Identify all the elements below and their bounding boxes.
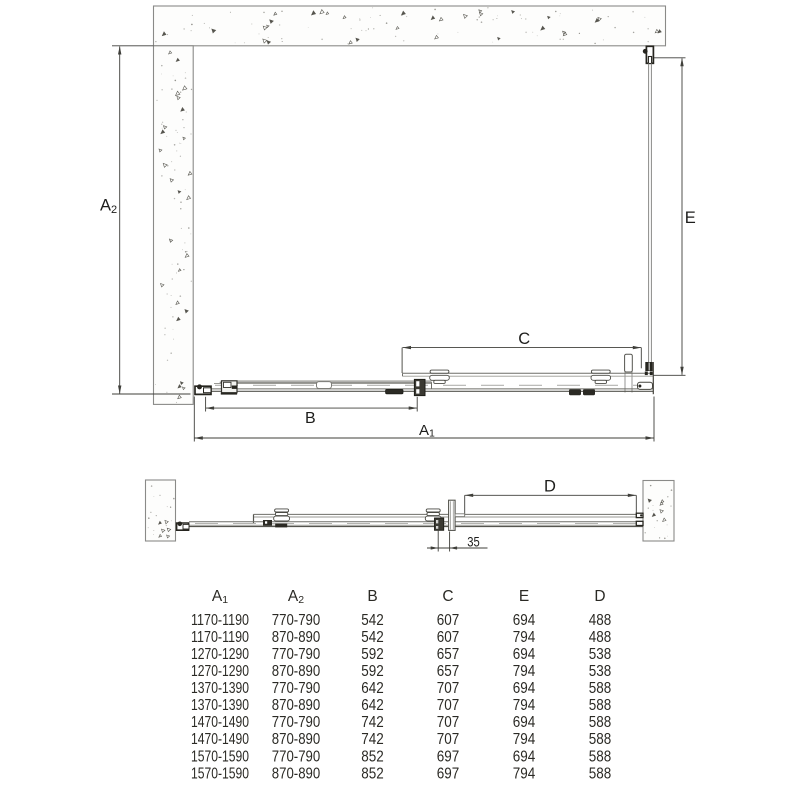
svg-text:770-790: 770-790 <box>272 714 321 731</box>
svg-text:B: B <box>367 588 377 605</box>
svg-text:697: 697 <box>437 748 460 765</box>
svg-text:794: 794 <box>513 765 536 782</box>
svg-text:707: 707 <box>437 731 460 748</box>
svg-text:592: 592 <box>361 663 384 680</box>
svg-text:707: 707 <box>437 714 460 731</box>
svg-text:1170-1190: 1170-1190 <box>191 612 249 629</box>
svg-text:592: 592 <box>361 646 384 663</box>
svg-text:657: 657 <box>437 663 460 680</box>
svg-text:538: 538 <box>589 646 612 663</box>
svg-text:D: D <box>544 478 556 496</box>
svg-text:C: C <box>442 588 453 605</box>
svg-text:794: 794 <box>513 663 536 680</box>
svg-text:E: E <box>685 209 696 227</box>
svg-text:538: 538 <box>589 663 612 680</box>
svg-text:870-890: 870-890 <box>272 697 321 714</box>
svg-text:694: 694 <box>513 748 536 765</box>
svg-text:770-790: 770-790 <box>272 680 321 697</box>
svg-text:870-890: 870-890 <box>272 629 321 646</box>
svg-text:770-790: 770-790 <box>272 612 321 629</box>
svg-text:B: B <box>305 410 316 427</box>
svg-text:657: 657 <box>437 646 460 663</box>
svg-text:1470-1490: 1470-1490 <box>191 731 249 748</box>
svg-text:694: 694 <box>513 714 536 731</box>
svg-text:488: 488 <box>589 629 612 646</box>
svg-text:742: 742 <box>361 731 384 748</box>
svg-text:694: 694 <box>513 612 536 629</box>
svg-text:852: 852 <box>361 765 384 782</box>
svg-text:1570-1590: 1570-1590 <box>191 748 249 765</box>
svg-text:1270-1290: 1270-1290 <box>191 663 249 680</box>
svg-text:C: C <box>518 330 530 348</box>
svg-text:1170-1190: 1170-1190 <box>191 629 249 646</box>
svg-text:588: 588 <box>589 697 612 714</box>
svg-text:707: 707 <box>437 697 460 714</box>
svg-text:870-890: 870-890 <box>272 765 321 782</box>
svg-text:770-790: 770-790 <box>272 748 321 765</box>
svg-text:1370-1390: 1370-1390 <box>191 697 249 714</box>
svg-text:588: 588 <box>589 680 612 697</box>
svg-text:742: 742 <box>361 714 384 731</box>
svg-text:35: 35 <box>467 534 480 550</box>
svg-text:1370-1390: 1370-1390 <box>191 680 249 697</box>
svg-text:770-790: 770-790 <box>272 646 321 663</box>
svg-text:1570-1590: 1570-1590 <box>191 765 249 782</box>
svg-text:870-890: 870-890 <box>272 663 321 680</box>
svg-text:588: 588 <box>589 765 612 782</box>
svg-text:870-890: 870-890 <box>272 731 321 748</box>
svg-text:588: 588 <box>589 731 612 748</box>
svg-text:E: E <box>519 588 529 605</box>
svg-text:542: 542 <box>361 612 384 629</box>
svg-text:642: 642 <box>361 697 384 714</box>
svg-text:588: 588 <box>589 714 612 731</box>
svg-text:794: 794 <box>513 629 536 646</box>
svg-text:694: 694 <box>513 646 536 663</box>
svg-text:488: 488 <box>589 612 612 629</box>
svg-text:607: 607 <box>437 612 460 629</box>
svg-text:794: 794 <box>513 697 536 714</box>
svg-text:642: 642 <box>361 680 384 697</box>
svg-text:607: 607 <box>437 629 460 646</box>
svg-text:852: 852 <box>361 748 384 765</box>
svg-text:588: 588 <box>589 748 612 765</box>
svg-text:D: D <box>594 588 605 605</box>
svg-text:1470-1490: 1470-1490 <box>191 714 249 731</box>
svg-text:542: 542 <box>361 629 384 646</box>
svg-text:707: 707 <box>437 680 460 697</box>
svg-text:1270-1290: 1270-1290 <box>191 646 249 663</box>
svg-text:697: 697 <box>437 765 460 782</box>
svg-text:694: 694 <box>513 680 536 697</box>
svg-text:794: 794 <box>513 731 536 748</box>
